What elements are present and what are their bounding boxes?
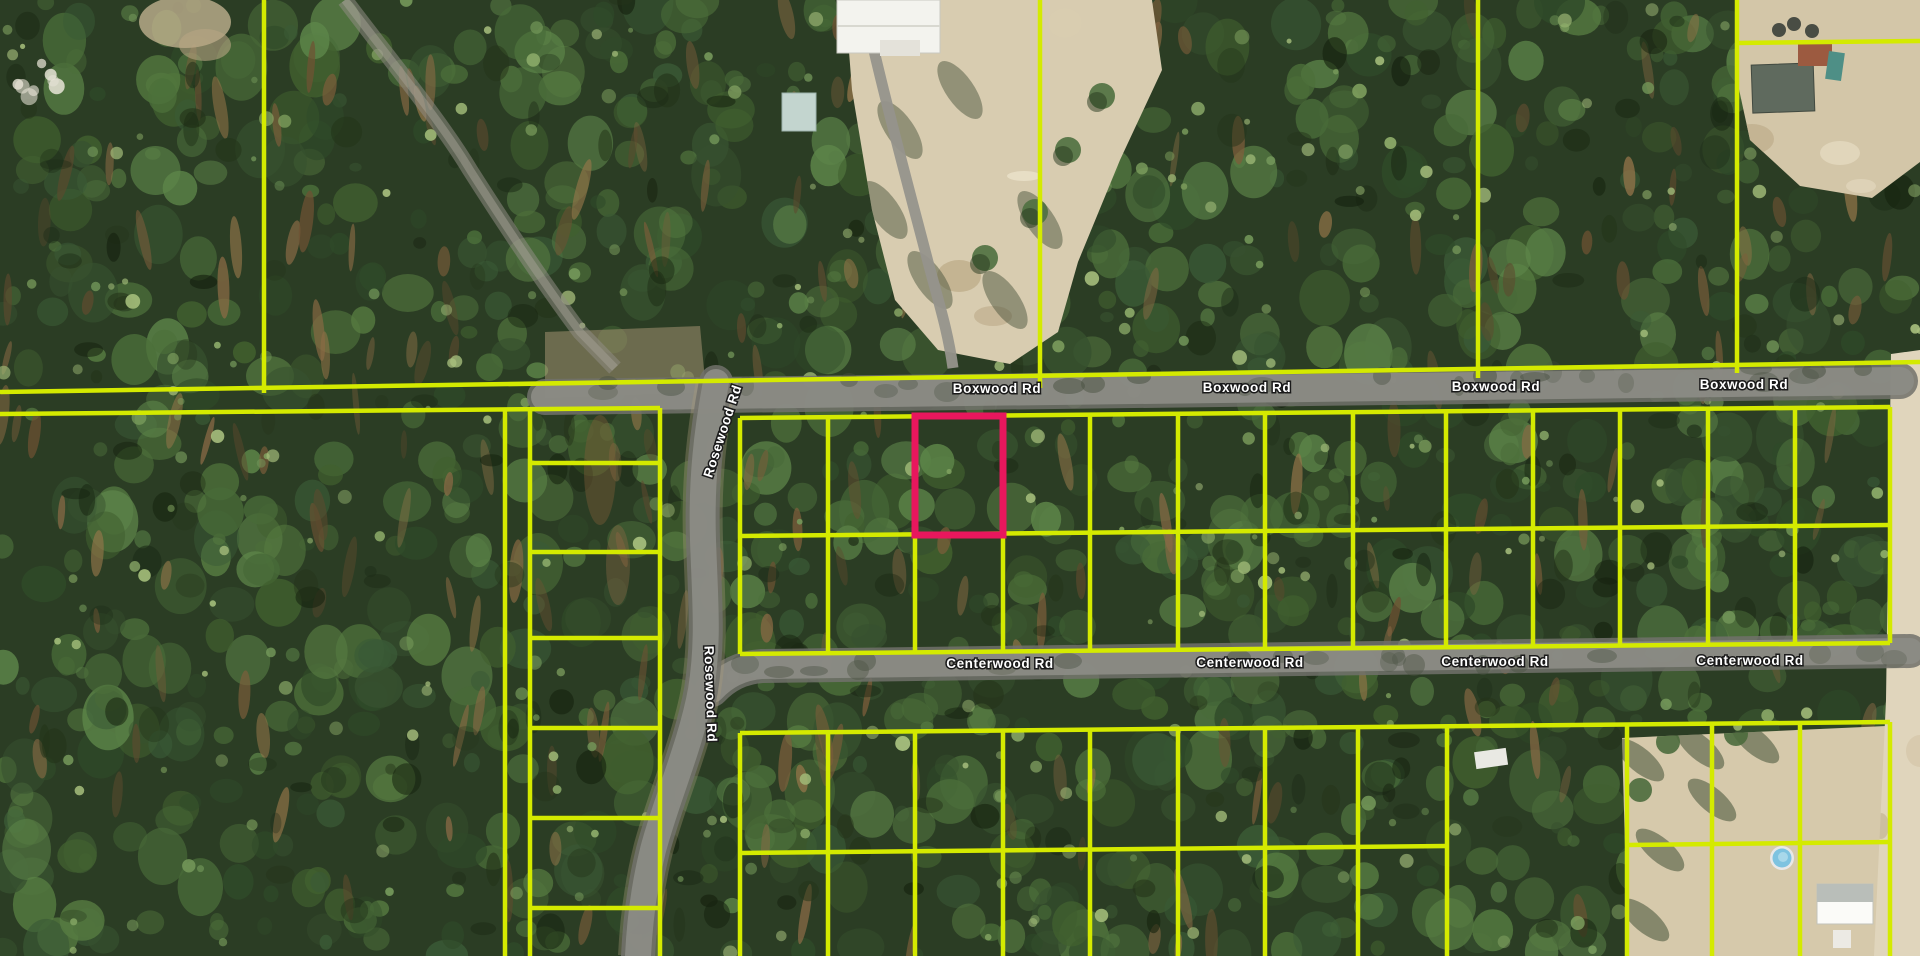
road-label-boxwood-4: Boxwood Rd (1700, 377, 1789, 392)
aerial-map-viewport[interactable]: Boxwood Rd Boxwood Rd Boxwood Rd Boxwood… (0, 0, 1920, 956)
satellite-basemap: Boxwood Rd Boxwood Rd Boxwood Rd Boxwood… (0, 0, 1920, 956)
road-label-centerwood-3: Centerwood Rd (1441, 654, 1549, 669)
road-label-centerwood-2: Centerwood Rd (1196, 655, 1304, 670)
road-label-centerwood-1: Centerwood Rd (946, 656, 1054, 671)
road-label-boxwood-3: Boxwood Rd (1452, 379, 1541, 394)
road-label-boxwood-1: Boxwood Rd (953, 381, 1042, 396)
road-label-centerwood-4: Centerwood Rd (1696, 653, 1804, 668)
road-label-boxwood-2: Boxwood Rd (1203, 380, 1292, 395)
